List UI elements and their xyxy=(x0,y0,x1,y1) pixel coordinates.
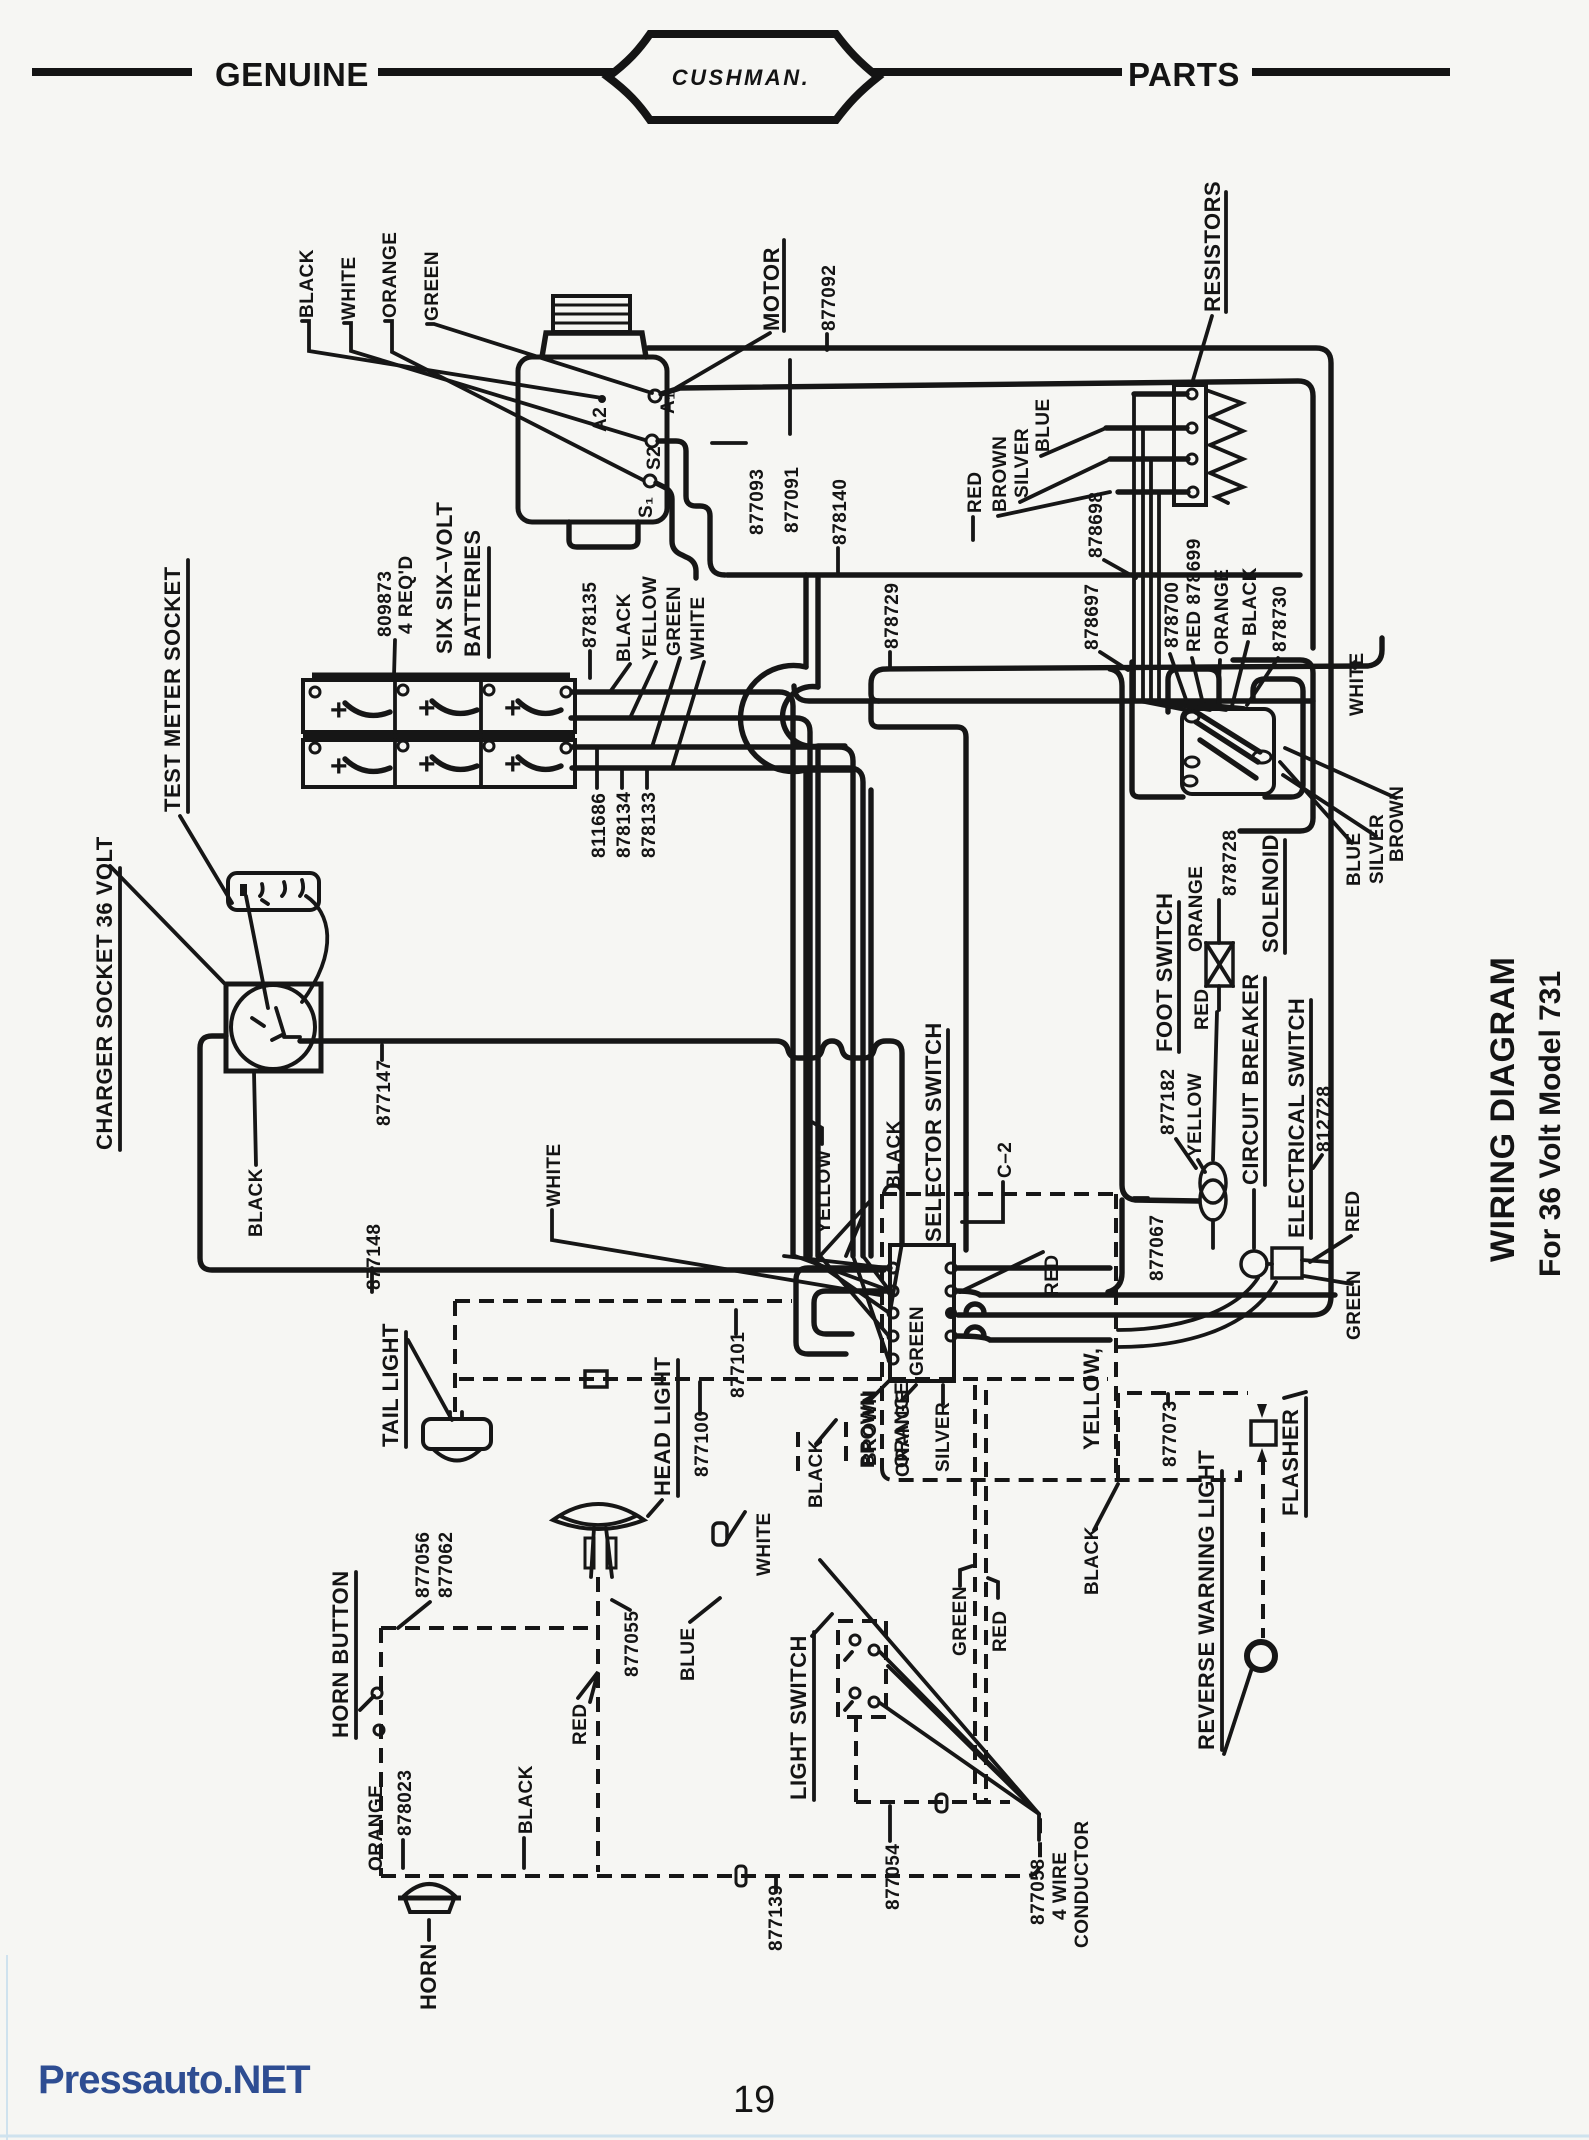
svg-text:S2: S2 xyxy=(644,446,665,470)
svg-text:877073: 877073 xyxy=(1160,1401,1181,1467)
svg-text:RED: RED xyxy=(1192,988,1213,1030)
svg-text:811686: 811686 xyxy=(589,793,610,858)
svg-text:SILVER: SILVER xyxy=(933,1402,954,1472)
svg-text:877062: 877062 xyxy=(436,1532,457,1598)
svg-text:SILVER: SILVER xyxy=(1012,428,1033,498)
svg-text:GREEN: GREEN xyxy=(907,1306,928,1376)
svg-text:878140: 878140 xyxy=(830,479,851,545)
svg-text:877101: 877101 xyxy=(728,1332,749,1398)
svg-text:877054: 877054 xyxy=(883,1844,904,1910)
svg-text:CHARGER SOCKET 36 VOLT: CHARGER SOCKET 36 VOLT xyxy=(92,836,117,1150)
svg-text:TAIL LIGHT: TAIL LIGHT xyxy=(378,1323,403,1447)
svg-text:WHITE: WHITE xyxy=(754,1512,775,1576)
svg-text:878023: 878023 xyxy=(395,1770,416,1836)
svg-text:878697: 878697 xyxy=(1082,584,1103,650)
svg-text:877058: 877058 xyxy=(1028,1859,1049,1925)
svg-text:FLASHER: FLASHER xyxy=(1278,1409,1303,1516)
svg-text:877100: 877100 xyxy=(692,1411,713,1477)
svg-text:877139: 877139 xyxy=(766,1885,787,1951)
svg-text:877093: 877093 xyxy=(747,469,768,535)
svg-text:878728: 878728 xyxy=(1220,830,1241,896)
svg-text:+: + xyxy=(504,748,522,781)
svg-text:GREEN: GREEN xyxy=(664,586,685,656)
svg-text:BLACK: BLACK xyxy=(884,1120,905,1189)
svg-text:ELECTRICAL SWITCH: ELECTRICAL SWITCH xyxy=(1284,998,1309,1238)
svg-text:For 36 Volt Model 731: For 36 Volt Model 731 xyxy=(1534,971,1567,1277)
svg-text:+: + xyxy=(418,692,436,725)
svg-text:YELLOW: YELLOW xyxy=(814,1150,835,1234)
svg-text:S₁: S₁ xyxy=(636,496,657,518)
svg-text:877056: 877056 xyxy=(413,1532,434,1598)
svg-text:4 REQ'D: 4 REQ'D xyxy=(396,555,417,634)
svg-text:+: + xyxy=(330,694,348,727)
svg-text:GREEN: GREEN xyxy=(950,1586,971,1656)
svg-text:WHITE: WHITE xyxy=(544,1143,565,1207)
svg-text:812728: 812728 xyxy=(1314,1086,1335,1152)
svg-text:ORANGE: ORANGE xyxy=(1212,569,1233,655)
svg-text:GREEN: GREEN xyxy=(422,251,443,321)
svg-text:ORANGE: ORANGE xyxy=(380,232,401,318)
svg-text:877148: 877148 xyxy=(364,1224,385,1290)
svg-text:MOTOR: MOTOR xyxy=(759,247,784,331)
svg-text:878134: 878134 xyxy=(614,792,635,858)
svg-text:BLACK: BLACK xyxy=(1240,567,1261,636)
svg-text:HORN: HORN xyxy=(416,1943,441,2010)
svg-text:809873: 809873 xyxy=(375,571,396,637)
svg-text:877147: 877147 xyxy=(374,1060,395,1126)
svg-text:REVERSE WARNING LIGHT: REVERSE WARNING LIGHT xyxy=(1194,1450,1219,1750)
svg-text:878133: 878133 xyxy=(639,792,660,858)
svg-text:RED: RED xyxy=(990,1610,1011,1652)
svg-text:878135: 878135 xyxy=(580,582,601,648)
svg-text:+: + xyxy=(504,692,522,725)
svg-text:SELECTOR SWITCH: SELECTOR SWITCH xyxy=(921,1022,946,1242)
svg-text:BLUE: BLUE xyxy=(678,1627,699,1681)
svg-text:BATTERIES: BATTERIES xyxy=(460,529,485,657)
svg-text:BROWN: BROWN xyxy=(860,1390,881,1466)
svg-text:BLACK: BLACK xyxy=(1082,1526,1103,1595)
svg-text:WHITE: WHITE xyxy=(688,596,709,660)
svg-text:BLACK: BLACK xyxy=(246,1168,267,1237)
svg-text:WHITE: WHITE xyxy=(1347,652,1368,716)
svg-text:YELLOW,: YELLOW, xyxy=(1079,1348,1104,1451)
svg-text:19: 19 xyxy=(733,2079,775,2121)
svg-text:BLACK: BLACK xyxy=(516,1765,537,1834)
svg-text:PARTS: PARTS xyxy=(1128,56,1240,93)
svg-text:TEST METER SOCKET: TEST METER SOCKET xyxy=(160,566,185,812)
svg-text:GREEN: GREEN xyxy=(1344,1270,1365,1340)
svg-text:878700: 878700 xyxy=(1162,582,1183,648)
svg-text:877092: 877092 xyxy=(819,265,840,331)
svg-text:RESISTORS: RESISTORS xyxy=(1200,181,1225,312)
svg-text:CIRCUIT BREAKER: CIRCUIT BREAKER xyxy=(1238,973,1263,1185)
svg-text:877055: 877055 xyxy=(622,1611,643,1677)
svg-text:+: + xyxy=(330,750,348,783)
svg-text:FOOT SWITCH: FOOT SWITCH xyxy=(1152,893,1177,1052)
svg-text:C–2: C–2 xyxy=(995,1142,1016,1178)
svg-text:Pressauto.NET: Pressauto.NET xyxy=(38,2058,310,2102)
svg-text:YELLOW: YELLOW xyxy=(1185,1073,1206,1157)
svg-text:WHITE: WHITE xyxy=(339,256,360,320)
svg-text:BLACK: BLACK xyxy=(806,1439,827,1508)
svg-text:HEAD LIGHT: HEAD LIGHT xyxy=(650,1357,675,1497)
svg-text:RED 878699: RED 878699 xyxy=(1184,538,1205,652)
svg-text:LIGHT SWITCH: LIGHT SWITCH xyxy=(786,1635,811,1800)
svg-text:878729: 878729 xyxy=(882,583,903,649)
svg-text:SOLENOID: SOLENOID xyxy=(1258,834,1283,953)
svg-text:GENUINE: GENUINE xyxy=(215,56,369,93)
svg-text:WIRING DIAGRAM: WIRING DIAGRAM xyxy=(1484,957,1522,1262)
svg-text:YELLOW: YELLOW xyxy=(640,576,661,660)
svg-text:CONDUCTOR: CONDUCTOR xyxy=(1072,1820,1093,1948)
svg-text:BLUE: BLUE xyxy=(1033,398,1054,452)
svg-text:877182: 877182 xyxy=(1158,1069,1179,1135)
svg-text:SIX SIX–VOLT: SIX SIX–VOLT xyxy=(432,502,457,654)
svg-text:ORANGE: ORANGE xyxy=(366,1785,387,1871)
svg-text:BROWN: BROWN xyxy=(990,436,1011,512)
svg-text:+: + xyxy=(418,748,436,781)
svg-text:RED: RED xyxy=(965,471,986,513)
svg-text:CUSHMAN.: CUSHMAN. xyxy=(672,65,811,90)
svg-text:877067: 877067 xyxy=(1147,1215,1168,1281)
svg-text:ORANGE: ORANGE xyxy=(893,1391,914,1477)
svg-text:877091: 877091 xyxy=(782,467,803,533)
svg-text:RED: RED xyxy=(1042,1254,1063,1296)
svg-text:RED: RED xyxy=(1343,1190,1364,1232)
svg-text:BLACK: BLACK xyxy=(297,249,318,318)
svg-text:HORN BUTTON: HORN BUTTON xyxy=(328,1570,353,1738)
svg-text:RED: RED xyxy=(570,1703,591,1745)
svg-text:ORANGE: ORANGE xyxy=(1186,866,1207,952)
svg-text:4 WIRE: 4 WIRE xyxy=(1050,1852,1071,1920)
svg-text:SILVER: SILVER xyxy=(1367,814,1388,884)
svg-text:878730: 878730 xyxy=(1270,586,1291,652)
svg-text:BLACK: BLACK xyxy=(614,593,635,662)
svg-text:878698: 878698 xyxy=(1086,492,1107,558)
